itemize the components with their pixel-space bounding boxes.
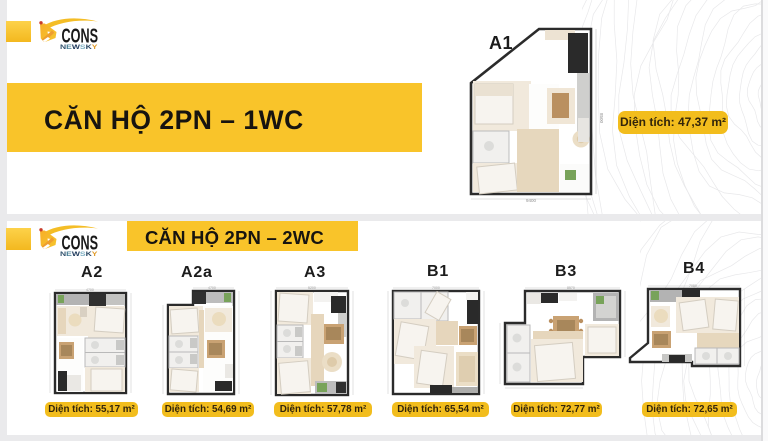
- svg-text:NEWSKY: NEWSKY: [60, 44, 98, 51]
- svg-text:8500: 8500: [599, 113, 604, 124]
- svg-text:4700: 4700: [86, 288, 94, 292]
- svg-text:4700: 4700: [208, 286, 216, 290]
- svg-text:NEWSKY: NEWSKY: [60, 251, 98, 258]
- svg-text:5200: 5200: [308, 286, 316, 290]
- svg-text:7000: 7000: [432, 286, 440, 290]
- svg-text:9400: 9400: [526, 198, 537, 203]
- svg-text:8570: 8570: [567, 286, 575, 290]
- svg-text:7080: 7080: [689, 284, 697, 288]
